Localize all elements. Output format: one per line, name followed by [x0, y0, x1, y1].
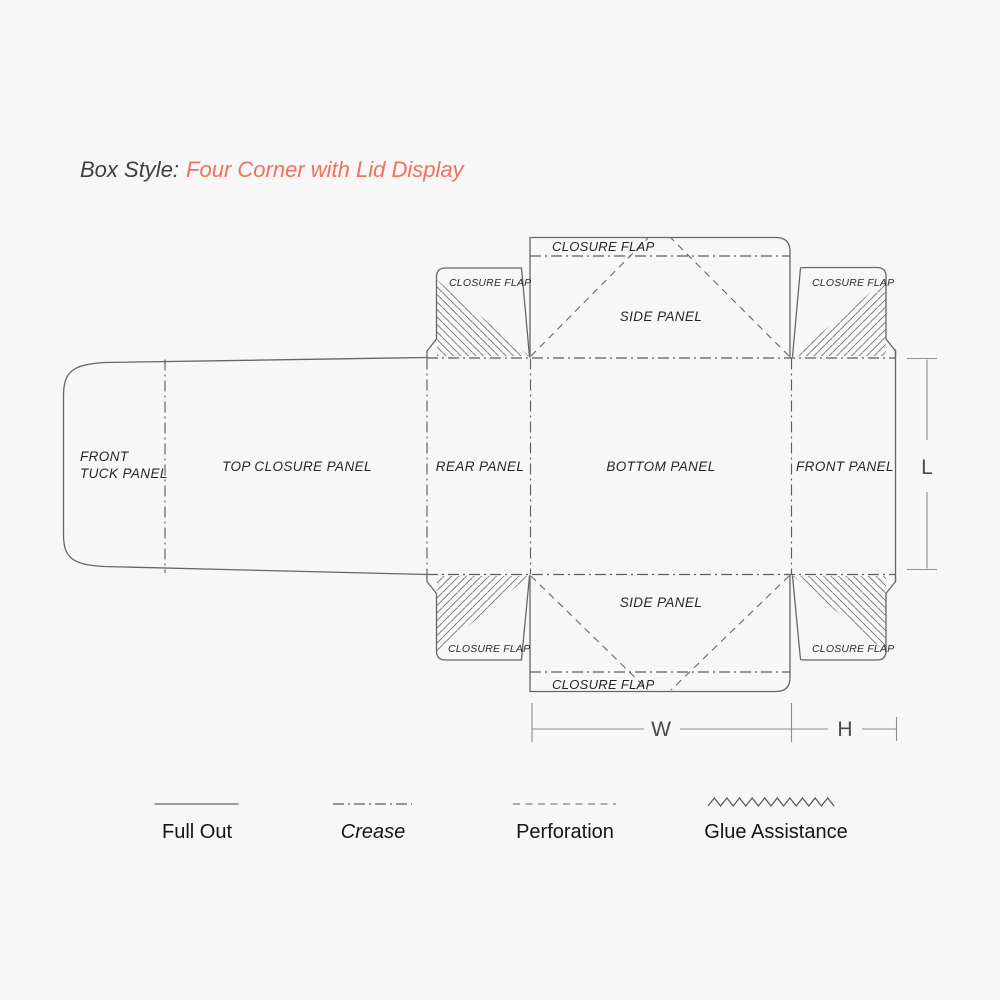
title-style-name: Four Corner with Lid Display [186, 157, 466, 182]
side-top-fold-left [531, 238, 648, 356]
legend-label-glue-assistance: Glue Assistance [704, 821, 847, 843]
closure-flap-bottom-left-label: CLOSURE FLAP [448, 643, 530, 655]
side-bottom-fold-left [531, 576, 648, 690]
rear-panel-label: REAR PANEL [436, 459, 525, 474]
closure-flap-bottom-strip-label: CLOSURE FLAP [552, 677, 655, 692]
dimension-length-label: L [921, 456, 933, 479]
glue-area-bottom-right [793, 576, 886, 652]
legend-item-full-out: Full Out [155, 804, 238, 843]
closure-flap-top-right-label: CLOSURE FLAP [812, 277, 894, 289]
dimension-width-label: W [651, 718, 671, 741]
legend-label-crease: Crease [341, 821, 405, 843]
dieline-page: Box Style:Four Corner with Lid Display F… [0, 0, 1000, 1000]
legend-label-perforation: Perforation [516, 821, 614, 843]
closure-flap-bottom-right-label: CLOSURE FLAP [812, 643, 894, 655]
box-dieline-diagram: Box Style:Four Corner with Lid Display F… [0, 0, 1000, 1000]
front-tuck-panel-label-line2: TUCK PANEL [80, 466, 168, 481]
dimension-width: W [532, 703, 792, 742]
glue-area-top-right [793, 280, 886, 356]
dimension-height: H [792, 717, 897, 741]
closure-flap-top-strip-label: CLOSURE FLAP [552, 239, 655, 254]
legend-label-full-out: Full Out [162, 821, 232, 843]
legend-line-zigzag [708, 798, 834, 806]
legend: Full Out Crease Perforation Glue Assista… [155, 798, 848, 843]
front-panel-label: FRONT PANEL [796, 459, 894, 474]
side-panel-top-label: SIDE PANEL [620, 309, 703, 324]
legend-item-crease: Crease [333, 804, 412, 843]
side-panel-bottom-outline [530, 575, 790, 692]
legend-item-glue-assistance: Glue Assistance [704, 798, 847, 843]
bottom-panel-label: BOTTOM PANEL [606, 459, 715, 474]
title-prefix: Box Style: [80, 157, 179, 182]
page-title: Box Style:Four Corner with Lid Display [80, 157, 466, 182]
legend-item-perforation: Perforation [513, 804, 616, 843]
front-tuck-panel-label-line1: FRONT [80, 449, 130, 464]
side-bottom-fold-right [671, 576, 789, 690]
side-panel-bottom-label: SIDE PANEL [620, 595, 703, 610]
closure-flap-top-left-label: CLOSURE FLAP [449, 277, 531, 289]
dimension-length: L [907, 359, 937, 570]
dimension-height-label: H [837, 718, 852, 741]
glue-area-top-left [437, 280, 529, 356]
top-closure-panel-label: TOP CLOSURE PANEL [222, 459, 372, 474]
glue-area-bottom-left [437, 576, 529, 652]
